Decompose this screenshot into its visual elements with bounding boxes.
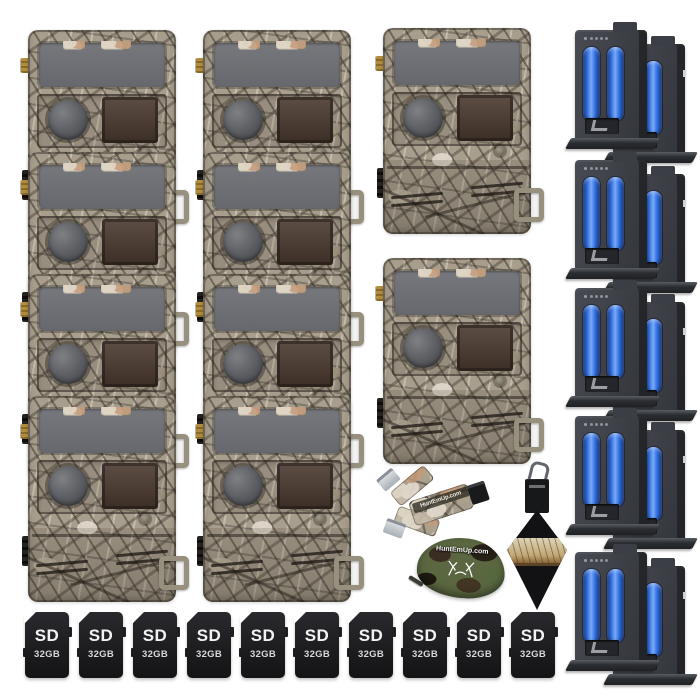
panel-notch bbox=[276, 285, 306, 294]
sd-card-capacity: 32GB bbox=[511, 649, 555, 660]
panel-notch bbox=[456, 269, 486, 278]
battery-pack bbox=[575, 416, 647, 528]
camera-body bbox=[203, 396, 351, 602]
pack-tab bbox=[613, 280, 637, 290]
battery-pack-pair bbox=[575, 288, 700, 416]
zipper-pull bbox=[408, 575, 424, 587]
battery-cell bbox=[607, 433, 624, 507]
ir-flash-window bbox=[102, 97, 158, 143]
sd-card: SD 32GB bbox=[241, 612, 285, 678]
sd-lock-tab bbox=[122, 627, 126, 637]
battery-cell bbox=[583, 569, 600, 643]
pack-latch bbox=[591, 642, 609, 653]
sd-card: SD 32GB bbox=[79, 612, 123, 678]
sd-card-label: SD bbox=[349, 626, 393, 646]
pack-base bbox=[565, 138, 660, 149]
pack-base bbox=[565, 524, 660, 535]
camera-lens bbox=[223, 466, 263, 506]
panel-notch bbox=[238, 41, 260, 50]
ir-flash-window bbox=[277, 341, 333, 387]
pack-tab bbox=[651, 294, 675, 304]
panel-notch bbox=[101, 407, 131, 416]
camera-pair-middle bbox=[383, 28, 553, 478]
pack-latch bbox=[591, 378, 609, 389]
panel-notch bbox=[63, 41, 85, 50]
sd-card: SD 32GB bbox=[457, 612, 501, 678]
pack-logo-dots bbox=[584, 167, 587, 170]
camera-lower-body bbox=[383, 160, 531, 234]
sd-card: SD 32GB bbox=[295, 612, 339, 678]
pouch-brand-label: HuntEmUp.com bbox=[418, 544, 506, 557]
sd-edge-bump bbox=[293, 648, 296, 657]
sd-card-label: SD bbox=[241, 626, 285, 646]
panel-notch bbox=[276, 41, 306, 50]
cloth-artwork-band bbox=[505, 538, 569, 566]
camera-front-panel bbox=[394, 271, 520, 315]
sd-card-capacity: 32GB bbox=[241, 649, 285, 660]
pack-logo-dots bbox=[584, 37, 587, 40]
pack-tab bbox=[651, 36, 675, 46]
panel-notch bbox=[456, 39, 486, 48]
camera-front-panel bbox=[214, 43, 340, 87]
sd-card-capacity: 32GB bbox=[349, 649, 393, 660]
panel-notch bbox=[63, 407, 85, 416]
pack-tab bbox=[651, 558, 675, 568]
strap-loop bbox=[334, 556, 364, 590]
panel-notch bbox=[101, 285, 131, 294]
sd-card: SD 32GB bbox=[187, 612, 231, 678]
camera-lens bbox=[223, 344, 263, 384]
battery-pack-column bbox=[575, 30, 700, 695]
sd-lock-tab bbox=[500, 627, 504, 637]
body-seam bbox=[387, 166, 527, 169]
pack-tab bbox=[613, 544, 637, 554]
battery-cell bbox=[645, 447, 662, 521]
camera-stack-left bbox=[28, 30, 198, 610]
motion-sensor bbox=[495, 146, 505, 156]
battery-cell bbox=[607, 305, 624, 379]
sd-edge-bump bbox=[185, 648, 188, 657]
camera-front-panel bbox=[39, 287, 165, 331]
pack-button bbox=[683, 200, 686, 207]
sd-card-capacity: 32GB bbox=[187, 649, 231, 660]
sd-lock-tab bbox=[68, 627, 72, 637]
sd-card: SD 32GB bbox=[25, 612, 69, 678]
battery-pack-pair bbox=[575, 30, 700, 158]
camera-lens bbox=[48, 344, 88, 384]
sd-card-label: SD bbox=[187, 626, 231, 646]
panel-notch bbox=[238, 285, 260, 294]
microfiber-cloth bbox=[505, 510, 569, 610]
camera-lens bbox=[223, 222, 263, 262]
pack-latch bbox=[591, 250, 609, 261]
pack-button bbox=[683, 70, 686, 77]
battery-pack-pair bbox=[575, 416, 700, 544]
camera-lens bbox=[48, 466, 88, 506]
sd-lock-tab bbox=[338, 627, 342, 637]
battery-cell bbox=[607, 47, 624, 121]
battery-cell bbox=[583, 433, 600, 507]
sd-edge-bump bbox=[239, 648, 242, 657]
sd-lock-tab bbox=[446, 627, 450, 637]
panel-notch bbox=[101, 163, 131, 172]
pack-latch bbox=[591, 506, 609, 517]
battery-cell bbox=[583, 47, 600, 121]
camera-front-panel bbox=[39, 409, 165, 453]
battery-cell bbox=[645, 319, 662, 393]
battery-pack-pair bbox=[575, 160, 700, 288]
trail-camera bbox=[383, 28, 531, 234]
product-collage: HuntEmUp.com HuntEmUp.com SD 32GB SD 32G… bbox=[0, 0, 700, 700]
camera-front-panel bbox=[39, 43, 165, 87]
pack-base bbox=[565, 396, 660, 407]
panel-notch bbox=[276, 407, 306, 416]
sd-edge-bump bbox=[401, 648, 404, 657]
camera-front-panel bbox=[214, 165, 340, 209]
camera-body bbox=[28, 396, 176, 602]
panel-notch bbox=[238, 163, 260, 172]
trail-camera bbox=[383, 258, 531, 464]
panel-notch bbox=[63, 163, 85, 172]
ir-flash-window bbox=[457, 95, 513, 141]
pack-logo-dots bbox=[584, 559, 587, 562]
panel-notch bbox=[418, 39, 440, 48]
strap-loop bbox=[159, 556, 189, 590]
camera-lens bbox=[223, 100, 263, 140]
pack-tab bbox=[613, 152, 637, 162]
sd-edge-bump bbox=[77, 648, 80, 657]
trail-camera bbox=[203, 396, 351, 602]
sd-lock-tab bbox=[392, 627, 396, 637]
cloth-pouch bbox=[525, 479, 549, 513]
battery-pack bbox=[575, 160, 647, 272]
motion-sensor bbox=[140, 514, 150, 524]
trail-camera bbox=[28, 396, 176, 602]
ir-flash-window bbox=[277, 219, 333, 265]
sd-card-label: SD bbox=[79, 626, 123, 646]
camo-zip-pouch: HuntEmUp.com bbox=[415, 535, 507, 601]
sd-card-capacity: 32GB bbox=[295, 649, 339, 660]
camera-lens bbox=[403, 328, 443, 368]
sd-edge-bump bbox=[23, 648, 26, 657]
pack-tab bbox=[613, 408, 637, 418]
sd-card-capacity: 32GB bbox=[25, 649, 69, 660]
battery-cell bbox=[583, 305, 600, 379]
pack-base bbox=[565, 660, 660, 671]
body-seam bbox=[387, 396, 527, 399]
sd-edge-bump bbox=[347, 648, 350, 657]
sd-card-capacity: 32GB bbox=[403, 649, 447, 660]
sd-lock-tab bbox=[554, 627, 558, 637]
camera-lower-body bbox=[28, 528, 176, 602]
sd-lock-tab bbox=[284, 627, 288, 637]
camera-lens bbox=[48, 222, 88, 262]
camera-front-panel bbox=[214, 409, 340, 453]
camera-body bbox=[383, 258, 531, 464]
camera-stack-center-left bbox=[203, 30, 373, 610]
sd-card-reader: HuntEmUp.com bbox=[381, 460, 498, 543]
sd-lock-tab bbox=[230, 627, 234, 637]
pack-button bbox=[683, 592, 686, 599]
sd-card: SD 32GB bbox=[511, 612, 555, 678]
battery-cell bbox=[607, 569, 624, 643]
sd-card-capacity: 32GB bbox=[133, 649, 177, 660]
camera-lower-body bbox=[383, 390, 531, 464]
battery-pack bbox=[575, 30, 647, 142]
sd-card-label: SD bbox=[133, 626, 177, 646]
sd-card-capacity: 32GB bbox=[79, 649, 123, 660]
panel-notch bbox=[418, 269, 440, 278]
panel-notch bbox=[276, 163, 306, 172]
strap-loop bbox=[514, 418, 544, 452]
sd-edge-bump bbox=[455, 648, 458, 657]
panel-notch bbox=[101, 41, 131, 50]
sd-card: SD 32GB bbox=[403, 612, 447, 678]
pack-tab bbox=[651, 422, 675, 432]
battery-cell bbox=[645, 61, 662, 135]
ir-flash-window bbox=[102, 219, 158, 265]
pack-logo-dots bbox=[584, 295, 587, 298]
pack-button bbox=[683, 456, 686, 463]
sd-card-label: SD bbox=[457, 626, 501, 646]
sd-card-label: SD bbox=[295, 626, 339, 646]
camera-front-panel bbox=[39, 165, 165, 209]
sd-card-label: SD bbox=[25, 626, 69, 646]
deer-skull-logo bbox=[442, 559, 480, 584]
motion-sensor bbox=[495, 376, 505, 386]
sd-edge-bump bbox=[131, 648, 134, 657]
ir-flash-window bbox=[277, 463, 333, 509]
pack-tab bbox=[651, 166, 675, 176]
camera-body bbox=[383, 28, 531, 234]
battery-pack bbox=[575, 288, 647, 400]
ir-flash-window bbox=[277, 97, 333, 143]
lens-cloth-hanger bbox=[504, 462, 570, 612]
battery-cell bbox=[645, 583, 662, 657]
strap-loop bbox=[514, 188, 544, 222]
battery-cell bbox=[645, 191, 662, 265]
panel-notch bbox=[238, 407, 260, 416]
pack-logo-dots bbox=[584, 423, 587, 426]
camera-front-panel bbox=[394, 41, 520, 85]
camera-front-panel bbox=[214, 287, 340, 331]
body-seam bbox=[207, 534, 347, 537]
sd-lock-tab bbox=[176, 627, 180, 637]
ir-flash-window bbox=[102, 463, 158, 509]
battery-cell bbox=[583, 177, 600, 251]
motion-sensor bbox=[315, 514, 325, 524]
camera-lower-body bbox=[203, 528, 351, 602]
battery-cell bbox=[607, 177, 624, 251]
pack-latch bbox=[591, 120, 609, 131]
pack-tab bbox=[613, 22, 637, 32]
camera-lens bbox=[403, 98, 443, 138]
camera-lens bbox=[48, 100, 88, 140]
panel-notch bbox=[63, 285, 85, 294]
sd-edge-bump bbox=[509, 648, 512, 657]
ir-flash-window bbox=[102, 341, 158, 387]
pack-base bbox=[603, 674, 698, 685]
battery-pack-pair bbox=[575, 552, 700, 680]
pack-button bbox=[683, 328, 686, 335]
sd-card-label: SD bbox=[511, 626, 555, 646]
sd-card-label: SD bbox=[403, 626, 447, 646]
sd-card: SD 32GB bbox=[349, 612, 393, 678]
pack-base bbox=[565, 268, 660, 279]
ir-flash-window bbox=[457, 325, 513, 371]
body-seam bbox=[32, 534, 172, 537]
battery-pack bbox=[575, 552, 647, 664]
sd-card-capacity: 32GB bbox=[457, 649, 501, 660]
cloth-tag bbox=[529, 485, 545, 488]
sd-card: SD 32GB bbox=[133, 612, 177, 678]
